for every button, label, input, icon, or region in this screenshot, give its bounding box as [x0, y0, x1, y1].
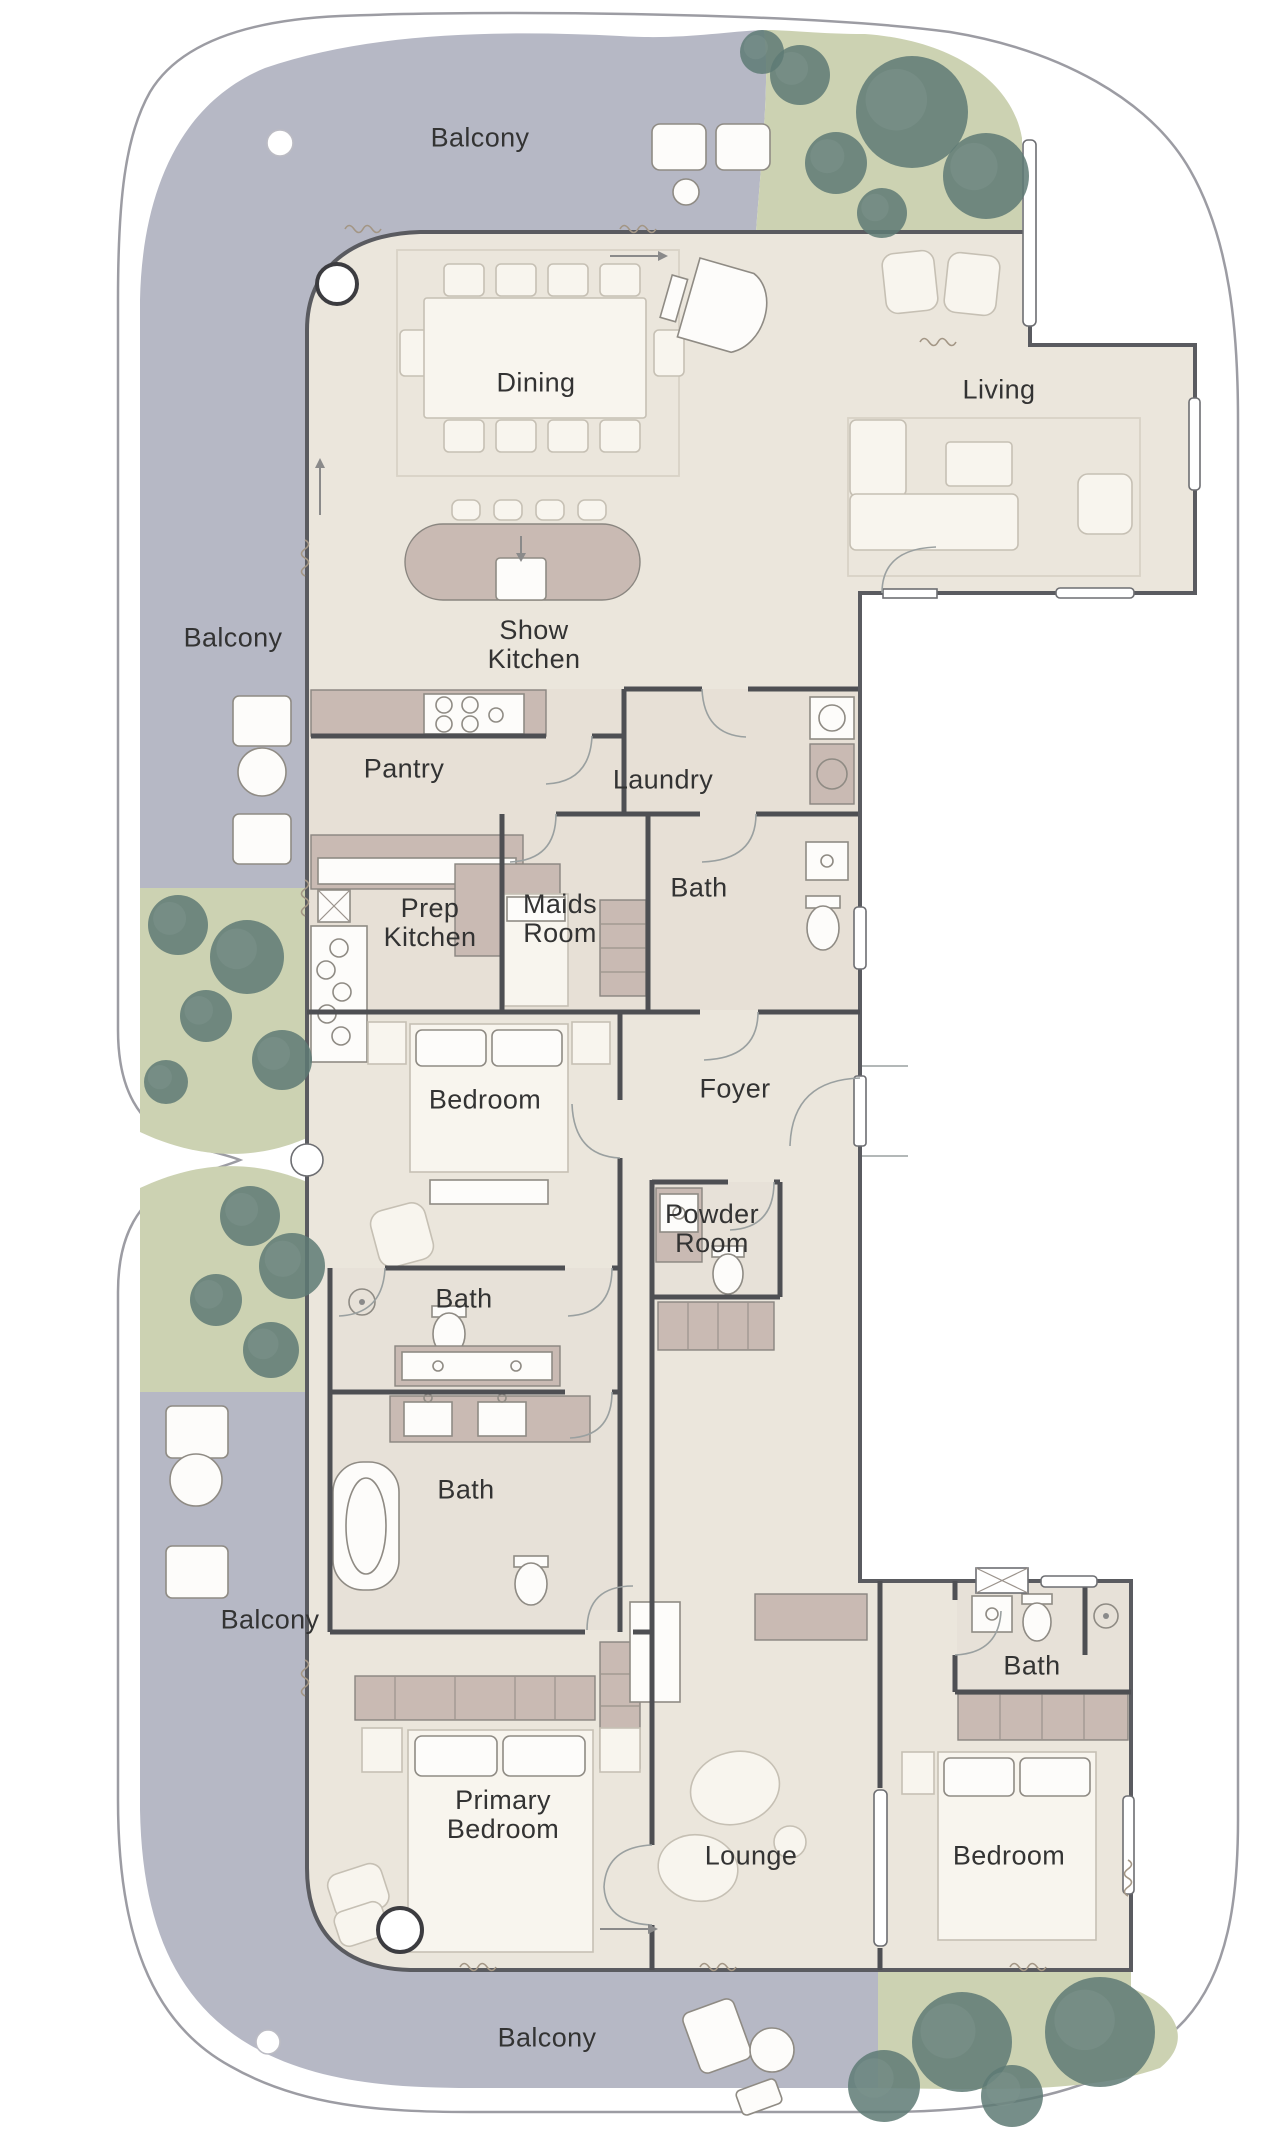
- tree-highlight: [194, 1280, 223, 1309]
- floor-plan-drawing: [0, 0, 1280, 2133]
- tree-highlight: [921, 2004, 976, 2059]
- room-label-living: Living: [963, 375, 1036, 404]
- column-icon: [378, 1908, 422, 1952]
- laundry-fixtures: [810, 697, 854, 804]
- room-label-lounge: Lounge: [705, 1841, 798, 1870]
- tree-highlight: [1054, 1990, 1115, 2050]
- floor-plan: BalconyDiningLivingBalconyShow KitchenPa…: [0, 0, 1280, 2133]
- tree-highlight: [225, 1193, 258, 1226]
- room-label-balcony: Balcony: [221, 1605, 320, 1634]
- room-label-maids-room: Maids Room: [523, 890, 597, 948]
- room-label-bath: Bath: [435, 1284, 492, 1313]
- room-label-dining: Dining: [497, 368, 576, 397]
- room-label-bedroom: Bedroom: [953, 1841, 1065, 1870]
- room-label-primary-bedroom: Primary Bedroom: [447, 1786, 559, 1844]
- room-label-pantry: Pantry: [364, 754, 444, 783]
- tree-highlight: [866, 69, 928, 131]
- room-label-foyer: Foyer: [699, 1074, 770, 1103]
- column-icon: [267, 130, 293, 156]
- tree-highlight: [861, 194, 889, 222]
- tree-highlight: [854, 2058, 894, 2098]
- room-label-balcony: Balcony: [431, 123, 530, 152]
- room-label-laundry: Laundry: [613, 765, 713, 794]
- tree-highlight: [148, 1065, 172, 1089]
- tree-highlight: [986, 2072, 1020, 2106]
- tree-highlight: [257, 1037, 290, 1070]
- tree-highlight: [810, 139, 844, 173]
- column-icon: [317, 264, 357, 304]
- tree-highlight: [248, 1328, 279, 1359]
- tree-highlight: [184, 996, 213, 1025]
- tree-highlight: [744, 35, 768, 59]
- pantry-counter: [311, 690, 546, 736]
- room-label-bath: Bath: [437, 1475, 494, 1504]
- tree-highlight: [153, 902, 186, 935]
- room-label-powder-room: Powder Room: [665, 1200, 759, 1258]
- room-label-bedroom: Bedroom: [429, 1085, 541, 1114]
- tree-highlight: [216, 929, 257, 970]
- room-label-balcony: Balcony: [184, 623, 283, 652]
- room-label-bath: Bath: [1003, 1651, 1060, 1680]
- column-icon: [256, 2030, 280, 2054]
- room-label-prep-kitchen: Prep Kitchen: [384, 894, 477, 952]
- room-label-show-kitchen: Show Kitchen: [488, 616, 581, 674]
- room-label-balcony: Balcony: [498, 2023, 597, 2052]
- tree-highlight: [950, 143, 997, 190]
- room-label-bath: Bath: [670, 873, 727, 902]
- tree-highlight: [265, 1241, 301, 1277]
